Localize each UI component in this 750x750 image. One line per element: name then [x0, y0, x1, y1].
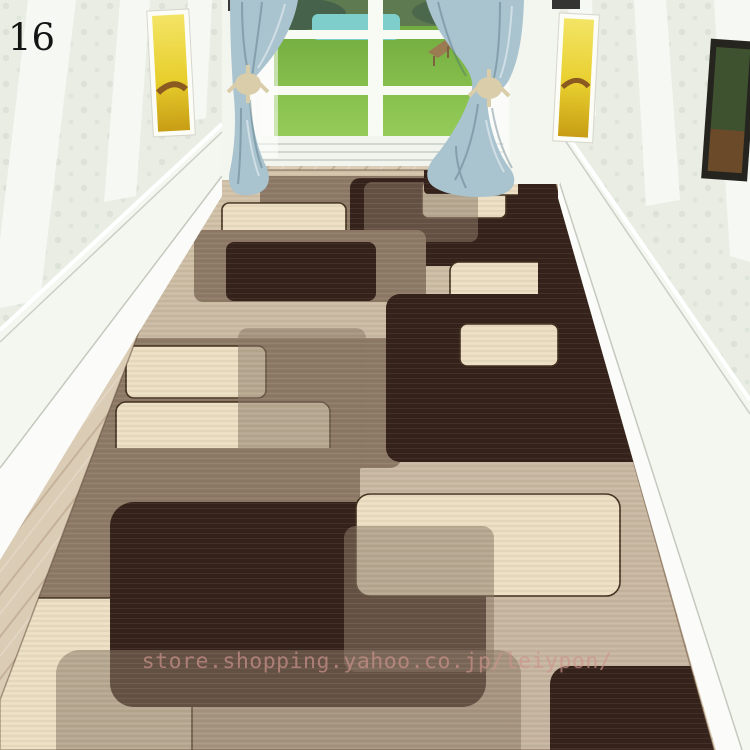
right-wall-picture — [553, 13, 600, 143]
picture-art — [152, 14, 190, 132]
watermark-text: store.shopping.yahoo.co.jp/leiypon/ — [142, 649, 613, 674]
corner-label: 16 — [8, 16, 55, 59]
photo-canvas: 16 store.shopping.yahoo.co.jp/leiypon/ — [0, 0, 750, 750]
left-wall-picture — [147, 9, 196, 137]
window-mullion — [262, 86, 492, 95]
window-mullion — [368, 0, 383, 136]
hallway-rug-product-photo: 16 store.shopping.yahoo.co.jp/leiypon/ — [0, 0, 750, 750]
small-picture-frame — [552, 0, 580, 9]
